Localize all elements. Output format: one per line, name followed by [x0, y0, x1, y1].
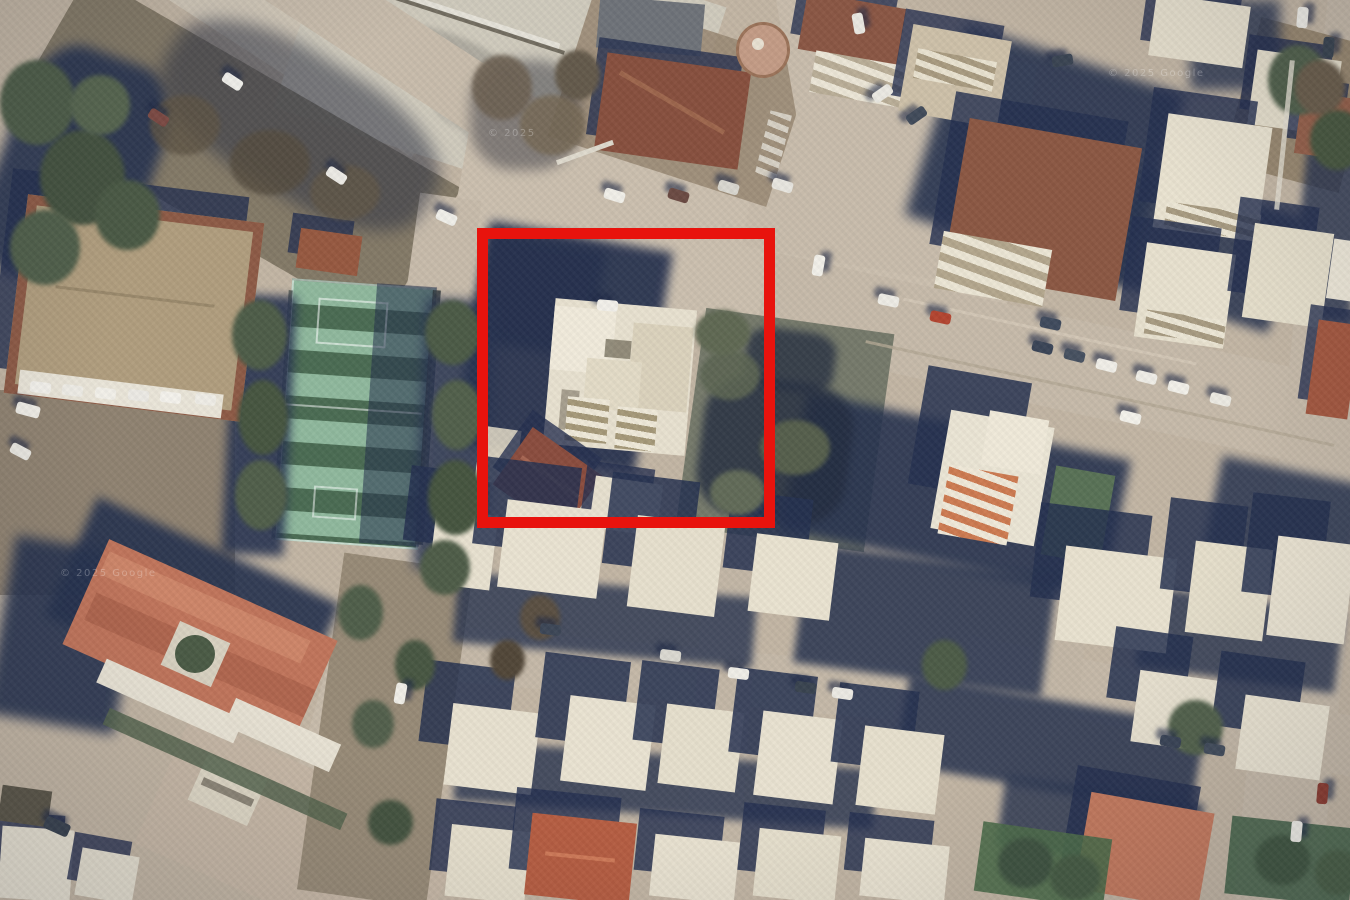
car	[1316, 783, 1329, 805]
house	[748, 533, 839, 620]
domed-pavilion-roof	[594, 52, 751, 169]
house	[443, 703, 540, 795]
tree	[1255, 835, 1310, 885]
tree	[368, 800, 413, 845]
building	[1148, 0, 1251, 68]
tree	[420, 540, 470, 595]
tree	[95, 180, 160, 250]
car	[727, 667, 749, 680]
house	[1266, 536, 1350, 645]
tree	[232, 300, 287, 370]
tree	[428, 460, 483, 535]
car	[159, 391, 181, 404]
tree	[338, 585, 383, 640]
dome-top	[752, 38, 764, 50]
tree	[70, 75, 130, 135]
house	[753, 828, 842, 900]
house	[1185, 541, 1274, 642]
house	[627, 515, 726, 617]
car	[127, 389, 149, 402]
tree	[0, 60, 75, 145]
tree	[922, 640, 967, 690]
house	[560, 695, 656, 791]
house	[444, 824, 531, 900]
car	[29, 381, 51, 394]
car	[1322, 37, 1335, 59]
dome	[736, 22, 790, 78]
tree	[238, 380, 288, 455]
house	[649, 834, 740, 900]
tree	[490, 640, 525, 680]
tree	[1050, 855, 1100, 900]
car	[659, 649, 681, 662]
tree	[520, 95, 585, 155]
house	[74, 847, 139, 900]
tree	[425, 300, 480, 365]
car	[61, 384, 83, 397]
kiosk	[296, 228, 363, 276]
tree	[310, 165, 380, 220]
car	[539, 623, 561, 636]
tree	[555, 50, 600, 100]
tree	[235, 460, 287, 530]
tree	[1295, 60, 1345, 115]
house	[657, 704, 744, 793]
balcony-rows	[937, 464, 1018, 545]
house	[1055, 546, 1178, 654]
building	[596, 0, 705, 56]
building	[1242, 223, 1334, 328]
tree	[230, 130, 310, 195]
car	[1203, 742, 1226, 756]
car	[94, 387, 116, 400]
house	[753, 710, 843, 804]
house	[859, 838, 950, 900]
car	[1296, 7, 1309, 29]
house	[1235, 694, 1330, 780]
highlight-box	[477, 228, 775, 528]
roof-block	[981, 410, 1050, 475]
tree	[10, 210, 80, 285]
goal-box	[312, 486, 358, 521]
tree	[998, 838, 1053, 888]
tree	[432, 380, 482, 450]
courtyard-tree	[175, 635, 215, 673]
satellite-image: © 2025 Google © 2025 Google © 2025	[0, 0, 1350, 900]
tree	[352, 700, 394, 748]
car	[1290, 821, 1303, 843]
car	[194, 393, 216, 406]
house	[855, 725, 944, 814]
